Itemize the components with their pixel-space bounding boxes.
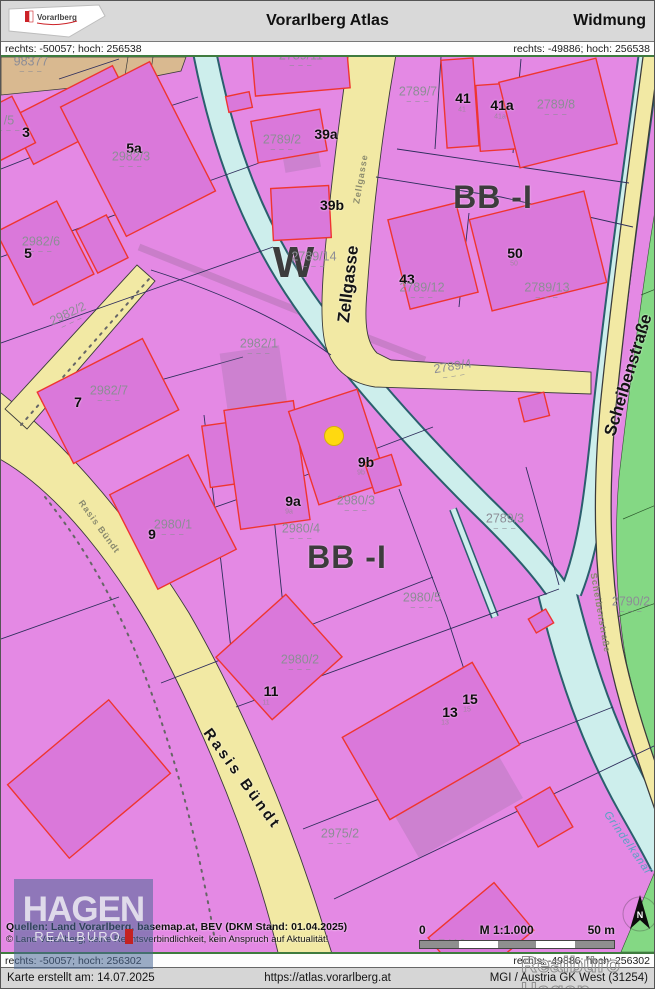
location-marker-dot <box>325 427 344 446</box>
hagen-realbuero-text: REALBÜRO <box>34 929 122 944</box>
realbuero-hagen-outline-watermark: Realbüro Hagen <box>521 952 654 989</box>
coordinate-bar-top: rechts: -50057; hoch: 256538 rechts: -49… <box>1 42 654 57</box>
scale-ratio-label: M 1:1.000 <box>480 923 534 937</box>
north-arrow-label: N <box>637 910 644 920</box>
hagen-red-mark-icon <box>125 929 133 944</box>
footer-created-date: Karte erstellt am: 14.07.2025 <box>7 972 155 984</box>
hagen-logo-watermark: HAGEN REALBÜRO <box>14 879 153 969</box>
map-canvas: N WBB -IBB -IZellgasseZellgasseScheibens… <box>1 57 655 952</box>
vorarlberg-logo-text: Vorarlberg <box>37 13 77 22</box>
scale-bar-segments <box>419 940 615 949</box>
map-theme-title: Widmung <box>573 12 646 30</box>
scale-zero-label: 0 <box>419 923 426 937</box>
page-title: Vorarlberg Atlas <box>266 12 389 30</box>
map-graphics: N <box>1 57 655 952</box>
footer-url: https://atlas.vorarlberg.at <box>264 972 391 984</box>
header-bar: Vorarlberg Vorarlberg Atlas Widmung <box>1 1 654 42</box>
coord-top-left: rechts: -50057; hoch: 256538 <box>5 43 142 55</box>
hagen-logo-text: HAGEN <box>14 893 153 927</box>
vorarlberg-logo-icon: Vorarlberg <box>7 3 111 41</box>
scale-max-label: 50 m <box>588 923 615 937</box>
coord-top-right: rechts: -49886; hoch: 256538 <box>513 43 650 55</box>
map-export-page: Vorarlberg Vorarlberg Atlas Widmung rech… <box>0 0 655 989</box>
scale-bar: 0 M 1:1.000 50 m <box>419 923 615 949</box>
